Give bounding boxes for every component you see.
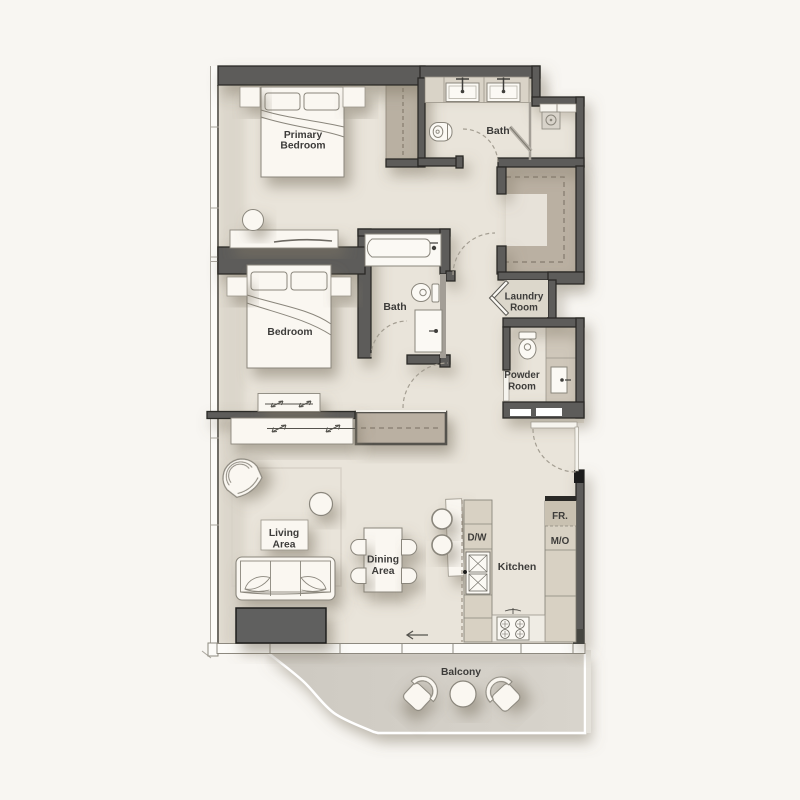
svg-text:Laundry: Laundry [505, 292, 544, 303]
svg-text:Bath: Bath [486, 125, 509, 137]
svg-text:Primary: Primary [284, 130, 323, 141]
svg-text:Balcony: Balcony [441, 667, 481, 678]
svg-text:Dining: Dining [367, 555, 399, 566]
svg-text:Room: Room [508, 382, 536, 393]
svg-text:Bath: Bath [383, 301, 406, 313]
svg-text:M/O: M/O [551, 536, 570, 547]
svg-text:Kitchen: Kitchen [498, 561, 537, 573]
svg-text:Area: Area [372, 566, 395, 577]
svg-text:D/W: D/W [467, 533, 487, 544]
svg-text:Powder: Powder [504, 370, 540, 381]
svg-text:Bedroom: Bedroom [280, 141, 325, 152]
svg-text:FR.: FR. [552, 511, 568, 522]
svg-text:Living: Living [269, 528, 299, 539]
svg-text:Bedroom: Bedroom [267, 327, 312, 338]
svg-text:Room: Room [510, 303, 538, 314]
svg-text:Area: Area [273, 540, 296, 551]
